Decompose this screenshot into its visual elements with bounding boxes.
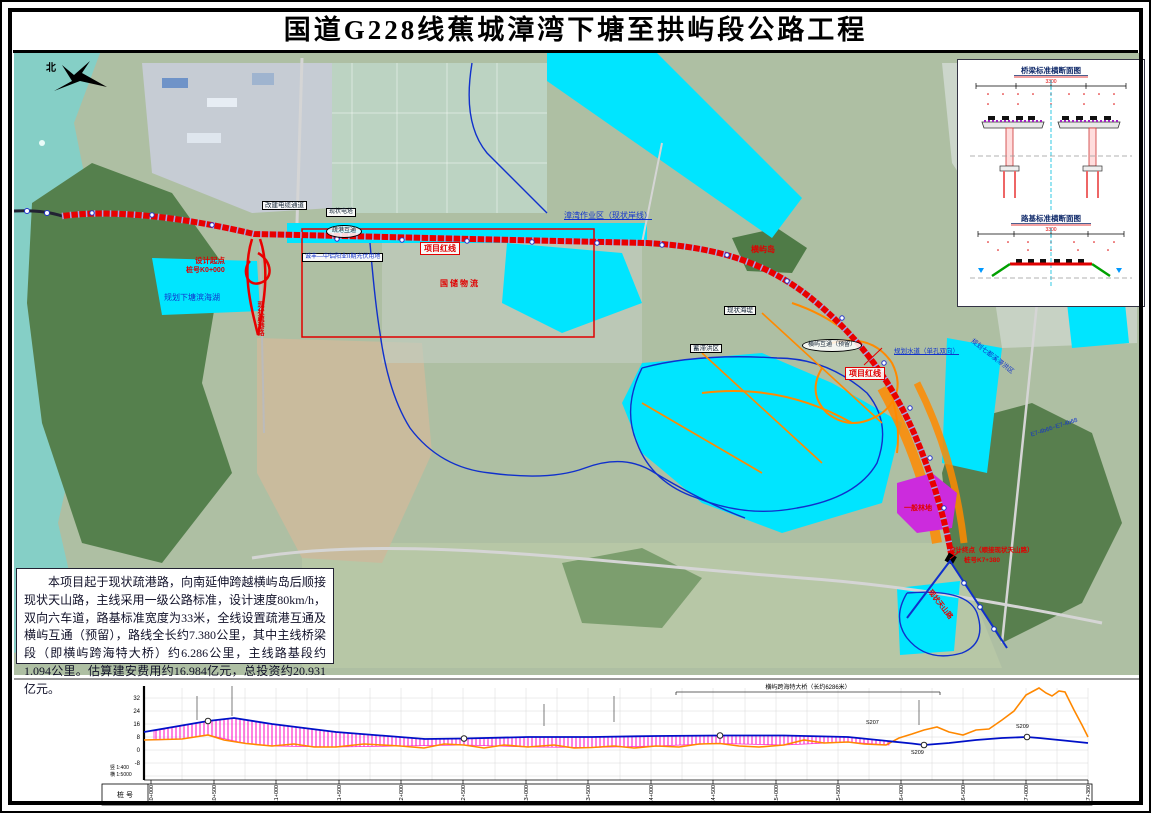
svg-text:16: 16 [133,722,140,728]
svg-text:北: 北 [46,61,56,74]
label-design-start: 设计起点 [195,257,225,266]
label-project-redline: 项目红线 [420,242,460,255]
svg-text:K6+000: K6+000 [899,785,905,804]
label-start-station: 桩号K0+000 [186,267,225,275]
label-hengyu-interchange: 横屿互通（预留） [802,339,862,352]
curve-label-3: S209 [1016,724,1029,730]
subgrade-section-title: 路基标准横断面图 [1021,213,1081,223]
label-power-tower: 现状电塔 [326,208,356,217]
vertical-scale-label: 竖 1:400 [110,764,129,771]
svg-text:K3+000: K3+000 [524,785,530,804]
svg-text:K4+500: K4+500 [711,785,717,804]
label-shugang-road: 现状疏港路 [256,301,264,336]
label-flood-area: 蓄滞洪区 [690,344,722,353]
label-planned-lake: 规划下塘滨海湖 [164,293,220,302]
cross-sections-panel: 桥梁标准横断面图 3300 [957,59,1145,307]
svg-text:K2+000: K2+000 [399,785,405,804]
label-project-redline-2: 项目红线 [845,367,885,380]
bridge-annotation-text: 横屿跨海特大桥（长约6286米） [765,683,850,691]
station-row-label: 桩 号 [117,790,133,799]
svg-text:K1+500: K1+500 [337,785,343,804]
svg-text:K1+000: K1+000 [274,785,280,804]
curve-label-2: S209 [911,750,924,756]
label-shugang-interchange: 疏港互通 [326,225,362,238]
svg-text:K0+500: K0+500 [212,785,218,804]
project-description-text: 本项目起于现状疏港路，向南延伸跨越横屿岛后顺接现状天山路，主线采用一级公路标准，… [24,574,326,698]
label-hengyu-island: 横屿岛 [751,245,775,254]
svg-text:K7+000: K7+000 [1024,785,1030,804]
svg-text:24: 24 [133,709,140,715]
svg-text:K3+500: K3+500 [586,785,592,804]
drawing-sheet: 国道G228线蕉城漳湾下塘至拱屿段公路工程 [0,0,1151,813]
svg-text:K7+380: K7+380 [1086,785,1092,804]
bridge-piers [1000,128,1102,198]
label-design-end: 设计终点（顺接现状天山路） [949,547,1034,554]
svg-text:K6+500: K6+500 [961,785,967,804]
svg-text:K0+000: K0+000 [149,785,155,804]
project-description-box: 本项目起于现状疏港路，向南延伸跨越横屿岛后顺接现状天山路，主线采用一级公路标准，… [16,568,334,664]
station-strip [102,784,1092,805]
bridge-section-title: 桥梁标准横断面图 [1021,65,1081,75]
label-end-station: 桩号K7+380 [964,557,1000,564]
cross-sections-canvas: 桥梁标准横断面图 3300 [958,60,1144,306]
label-existing-seawall: 现状海堤 [724,306,756,315]
svg-text:K5+500: K5+500 [836,785,842,804]
svg-text:-8: -8 [135,761,141,767]
label-cable-channel: 改建电缆通道 [262,201,307,210]
page-title: 国道G228线蕉城漳湾下塘至拱屿段公路工程 [13,12,1138,53]
label-planned-channel: 规划水道（单孔双向） [894,348,959,355]
svg-text:K5+000: K5+000 [774,785,780,804]
label-pv-land: 诚丰—中铝阳业II期光伏用地 [302,253,383,262]
svg-text:K2+500: K2+500 [461,785,467,804]
aquaculture-fields [332,63,547,213]
profile-canvas: 32 24 16 8 0 -8 竖 1:400 横 1:5000 S207 S2… [14,680,1141,809]
curve-label-1: S207 [866,720,879,726]
label-logistics: 国储物流 [440,279,480,288]
label-zhangwan-port: 漳湾作业区（现状岸线） [564,211,652,220]
label-forest-land: 一般林地 [904,505,932,513]
horizontal-scale-label: 横 1:5000 [110,771,132,778]
svg-text:K4+000: K4+000 [649,785,655,804]
